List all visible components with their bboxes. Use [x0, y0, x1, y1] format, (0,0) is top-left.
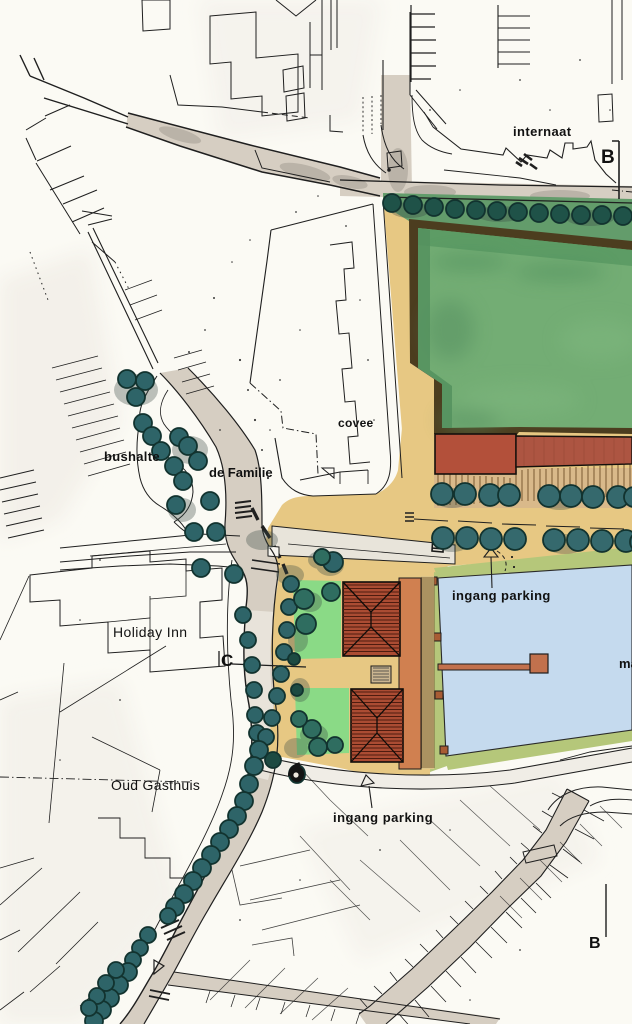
- svg-text:ma: ma: [619, 656, 632, 671]
- svg-text:Oud Gasthuis: Oud Gasthuis: [111, 777, 200, 793]
- svg-text:de Familie: de Familie: [209, 465, 273, 480]
- svg-text:bushalte: bushalte: [104, 449, 160, 464]
- svg-text:Holiday Inn: Holiday Inn: [113, 624, 187, 640]
- svg-text:B: B: [601, 147, 615, 168]
- svg-text:covee: covee: [338, 416, 374, 430]
- svg-text:ingang parking: ingang parking: [333, 810, 433, 825]
- svg-text:internaat: internaat: [513, 124, 572, 139]
- svg-text:B: B: [589, 935, 601, 952]
- svg-text:ingang parking: ingang parking: [452, 588, 551, 603]
- svg-text:C: C: [221, 651, 233, 670]
